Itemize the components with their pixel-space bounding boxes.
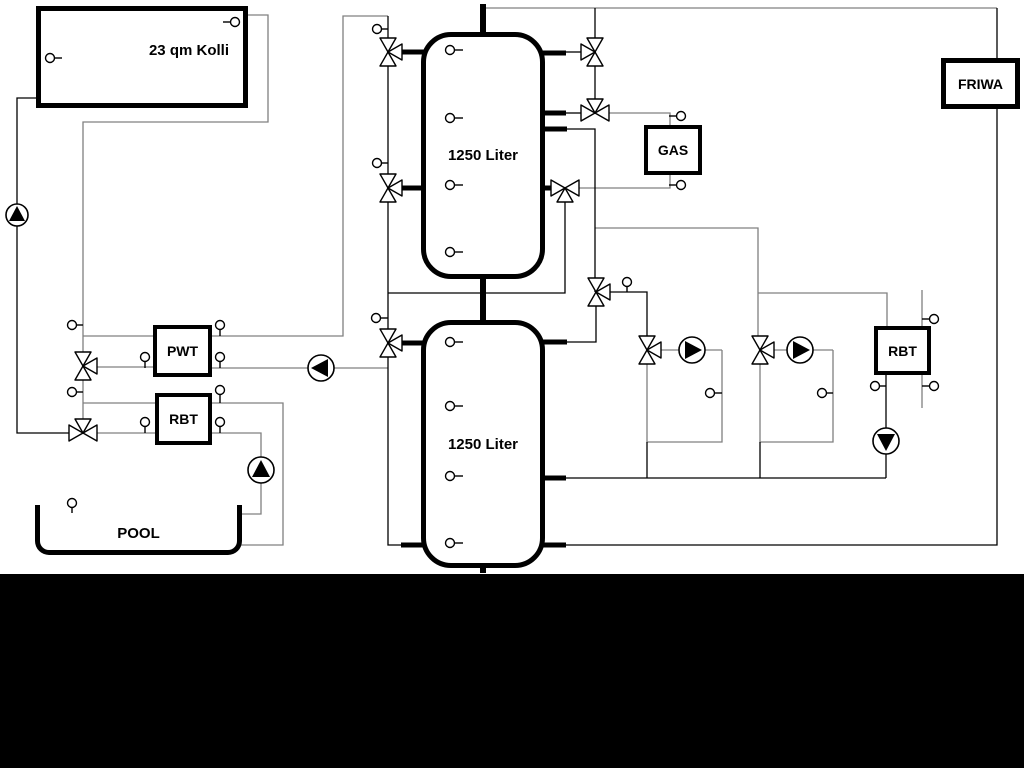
temperature-sensor-icon: [446, 402, 464, 411]
pump-icon: [6, 204, 28, 226]
temperature-sensor-icon: [669, 112, 686, 121]
three-way-valve-icon: [639, 336, 661, 364]
three-way-valve-icon: [380, 174, 402, 202]
temperature-sensor-icon: [373, 25, 389, 34]
temperature-sensor-icon: [68, 499, 77, 514]
three-way-valve-icon: [69, 419, 97, 441]
temperature-sensor-icon: [141, 418, 150, 434]
temperature-sensor-icon: [68, 321, 84, 330]
temperature-sensor-icon: [216, 321, 225, 337]
temperature-sensor-icon: [871, 382, 887, 391]
three-way-valve-icon: [75, 352, 97, 380]
sensors: [46, 18, 939, 548]
temperature-sensor-icon: [446, 338, 464, 347]
temperature-sensor-icon: [216, 386, 225, 404]
temperature-sensor-icon: [446, 114, 464, 123]
temperature-sensor-icon: [223, 18, 240, 27]
pump-icon: [308, 355, 334, 381]
pump-icon: [679, 337, 705, 363]
temperature-sensor-icon: [669, 181, 686, 190]
temperature-sensor-icon: [818, 389, 834, 398]
temperature-sensor-icon: [446, 181, 464, 190]
temperature-sensor-icon: [216, 418, 225, 434]
temperature-sensor-icon: [68, 388, 84, 397]
pump-icon: [787, 337, 813, 363]
temperature-sensor-icon: [141, 353, 150, 369]
three-way-valve-icon: [380, 38, 402, 66]
three-way-valve-icon: [581, 38, 603, 66]
three-way-valve-icon: [752, 336, 774, 364]
temperature-sensor-icon: [446, 472, 464, 481]
temperature-sensor-icon: [373, 159, 389, 168]
three-way-valve-icon: [581, 99, 609, 121]
pump-icon: [248, 457, 274, 483]
temperature-sensor-icon: [446, 539, 464, 548]
three-way-valve-icon: [380, 329, 402, 357]
temperature-sensor-icon: [46, 54, 63, 63]
diagram-canvas: 23 qm Kolli 1250 Liter 1250 Liter GAS FR…: [0, 0, 1024, 768]
temperature-sensor-icon: [372, 314, 389, 323]
temperature-sensor-icon: [922, 382, 939, 391]
pump-icon: [873, 428, 899, 454]
tank-port-stubs: [401, 4, 567, 573]
temperature-sensor-icon: [922, 315, 939, 324]
temperature-sensor-icon: [216, 353, 225, 369]
temperature-sensor-icon: [446, 248, 464, 257]
bottom-black-bar: [0, 574, 1024, 768]
temperature-sensor-icon: [623, 278, 632, 293]
three-way-valve-icon: [551, 180, 579, 202]
temperature-sensor-icon: [446, 46, 464, 55]
three-way-valve-icon: [588, 278, 610, 306]
temperature-sensor-icon: [706, 389, 723, 398]
valves: [69, 38, 774, 441]
